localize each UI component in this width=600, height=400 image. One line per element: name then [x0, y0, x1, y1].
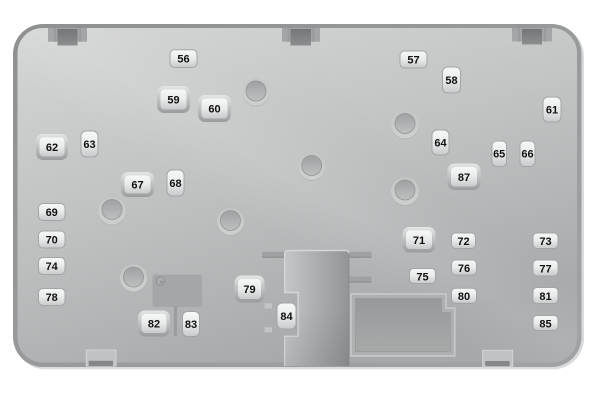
svg-text:80: 80 — [458, 291, 470, 303]
svg-text:59: 59 — [167, 95, 179, 107]
svg-text:84: 84 — [280, 311, 293, 323]
svg-text:63: 63 — [83, 139, 95, 151]
svg-text:56: 56 — [177, 54, 189, 66]
svg-text:79: 79 — [243, 284, 255, 296]
svg-text:58: 58 — [445, 75, 457, 87]
svg-text:65: 65 — [493, 149, 505, 161]
svg-text:70: 70 — [46, 235, 58, 247]
svg-text:67: 67 — [131, 180, 143, 192]
svg-text:87: 87 — [458, 172, 470, 184]
svg-text:71: 71 — [413, 235, 425, 247]
svg-text:76: 76 — [458, 263, 470, 275]
svg-text:78: 78 — [46, 292, 58, 304]
svg-text:83: 83 — [185, 319, 197, 331]
svg-text:68: 68 — [169, 178, 181, 190]
svg-text:77: 77 — [539, 263, 551, 275]
svg-text:62: 62 — [46, 142, 58, 154]
svg-text:60: 60 — [208, 104, 220, 116]
svg-text:64: 64 — [434, 138, 447, 150]
svg-text:57: 57 — [407, 55, 419, 67]
svg-text:72: 72 — [457, 236, 469, 248]
svg-text:81: 81 — [539, 291, 551, 303]
svg-text:74: 74 — [46, 261, 59, 273]
svg-text:73: 73 — [539, 236, 551, 248]
svg-text:61: 61 — [546, 105, 558, 117]
svg-text:69: 69 — [46, 207, 58, 219]
svg-text:85: 85 — [539, 318, 551, 330]
svg-text:82: 82 — [148, 319, 160, 331]
svg-text:66: 66 — [521, 149, 533, 161]
svg-text:75: 75 — [416, 271, 428, 283]
